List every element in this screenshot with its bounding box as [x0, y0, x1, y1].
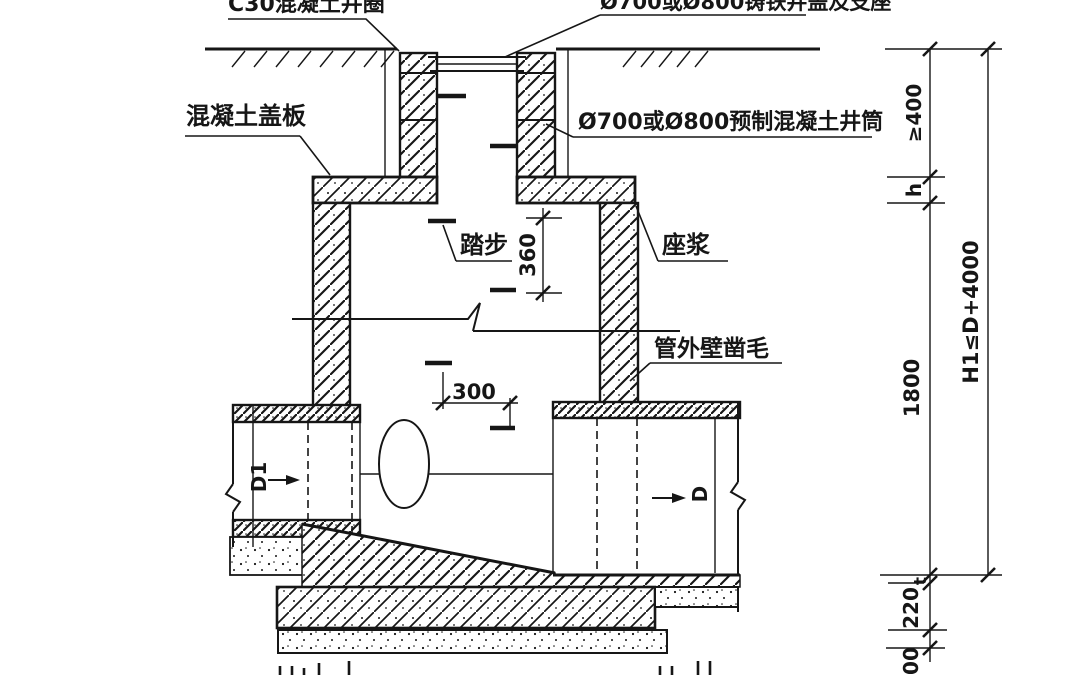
collar-label-text: C30混凝土井圈: [228, 0, 385, 17]
base-slab: [277, 587, 655, 628]
step-label-text: 踏步: [460, 231, 508, 259]
shaft-label-text: Ø700或Ø800预制混凝土井筒: [578, 109, 883, 135]
cover-slab-label-text: 混凝土盖板: [186, 102, 307, 130]
dim-360-text: 360: [516, 233, 540, 277]
dim-1800-text: 1800: [900, 359, 924, 417]
dim-slab-h-text: h: [902, 183, 926, 197]
mortar-label-text: 座浆: [662, 231, 711, 259]
chamber-wall-right: [600, 203, 638, 403]
inlet-pipe-label: D1: [247, 462, 271, 493]
benching: [302, 524, 740, 587]
label-collar: C30混凝土井圈: [228, 0, 399, 51]
label-pipe-roughen: 管外壁凿毛: [630, 335, 782, 381]
caption-cutoff-strokes: [280, 661, 710, 675]
channel-opening: [379, 420, 429, 508]
soil-hatch-right: [623, 51, 708, 67]
inlet-flow-arrow: [268, 475, 300, 485]
dim-overall-height-text: H1≤D+4000: [959, 240, 983, 383]
outlet-bedding: [655, 587, 738, 607]
cover-slab: [313, 177, 635, 203]
manhole-cover-and-frame: [428, 57, 526, 71]
pipe-roughen-label-text: 管外壁凿毛: [654, 335, 769, 362]
manhole-section-drawing: D1 D C30混凝土井圈 Ø700或Ø800铸铁井盖及支: [0, 0, 1080, 675]
dimension-chain: ≥400 h 1800 t 220 100 H1≤D+4000: [880, 42, 1002, 675]
label-shaft: Ø700或Ø800预制混凝土井筒: [546, 109, 883, 137]
soil-hatch-left: [232, 51, 394, 67]
dim-100-text: 100: [899, 647, 923, 675]
shaft-assembly: [385, 49, 568, 177]
dim-min-cover-text: ≥400: [902, 84, 926, 143]
dim-220-text: 220: [899, 587, 923, 629]
cover-frame-label-text: Ø700或Ø800铸铁井盖及支座: [600, 0, 891, 14]
outlet-pipe-label: D: [688, 486, 712, 503]
dim-step-offset: 300: [432, 372, 518, 426]
dim-step-spacing: 360: [516, 208, 562, 302]
ground-line: [205, 49, 1002, 67]
dim-300-text: 300: [452, 380, 496, 404]
chamber-wall-left: [313, 203, 350, 407]
label-step: 踏步: [443, 225, 512, 261]
label-mortar: 座浆: [636, 206, 728, 261]
label-cover-slab: 混凝土盖板: [185, 102, 330, 175]
flow-channel: [360, 420, 553, 508]
inlet-bedding: [230, 537, 313, 575]
dim-t-text: t: [911, 577, 931, 585]
outlet-flow-arrow: [652, 493, 686, 503]
cushion-layer: [278, 630, 667, 653]
drawing-canvas: D1 D C30混凝土井圈 Ø700或Ø800铸铁井盖及支: [0, 0, 1080, 675]
